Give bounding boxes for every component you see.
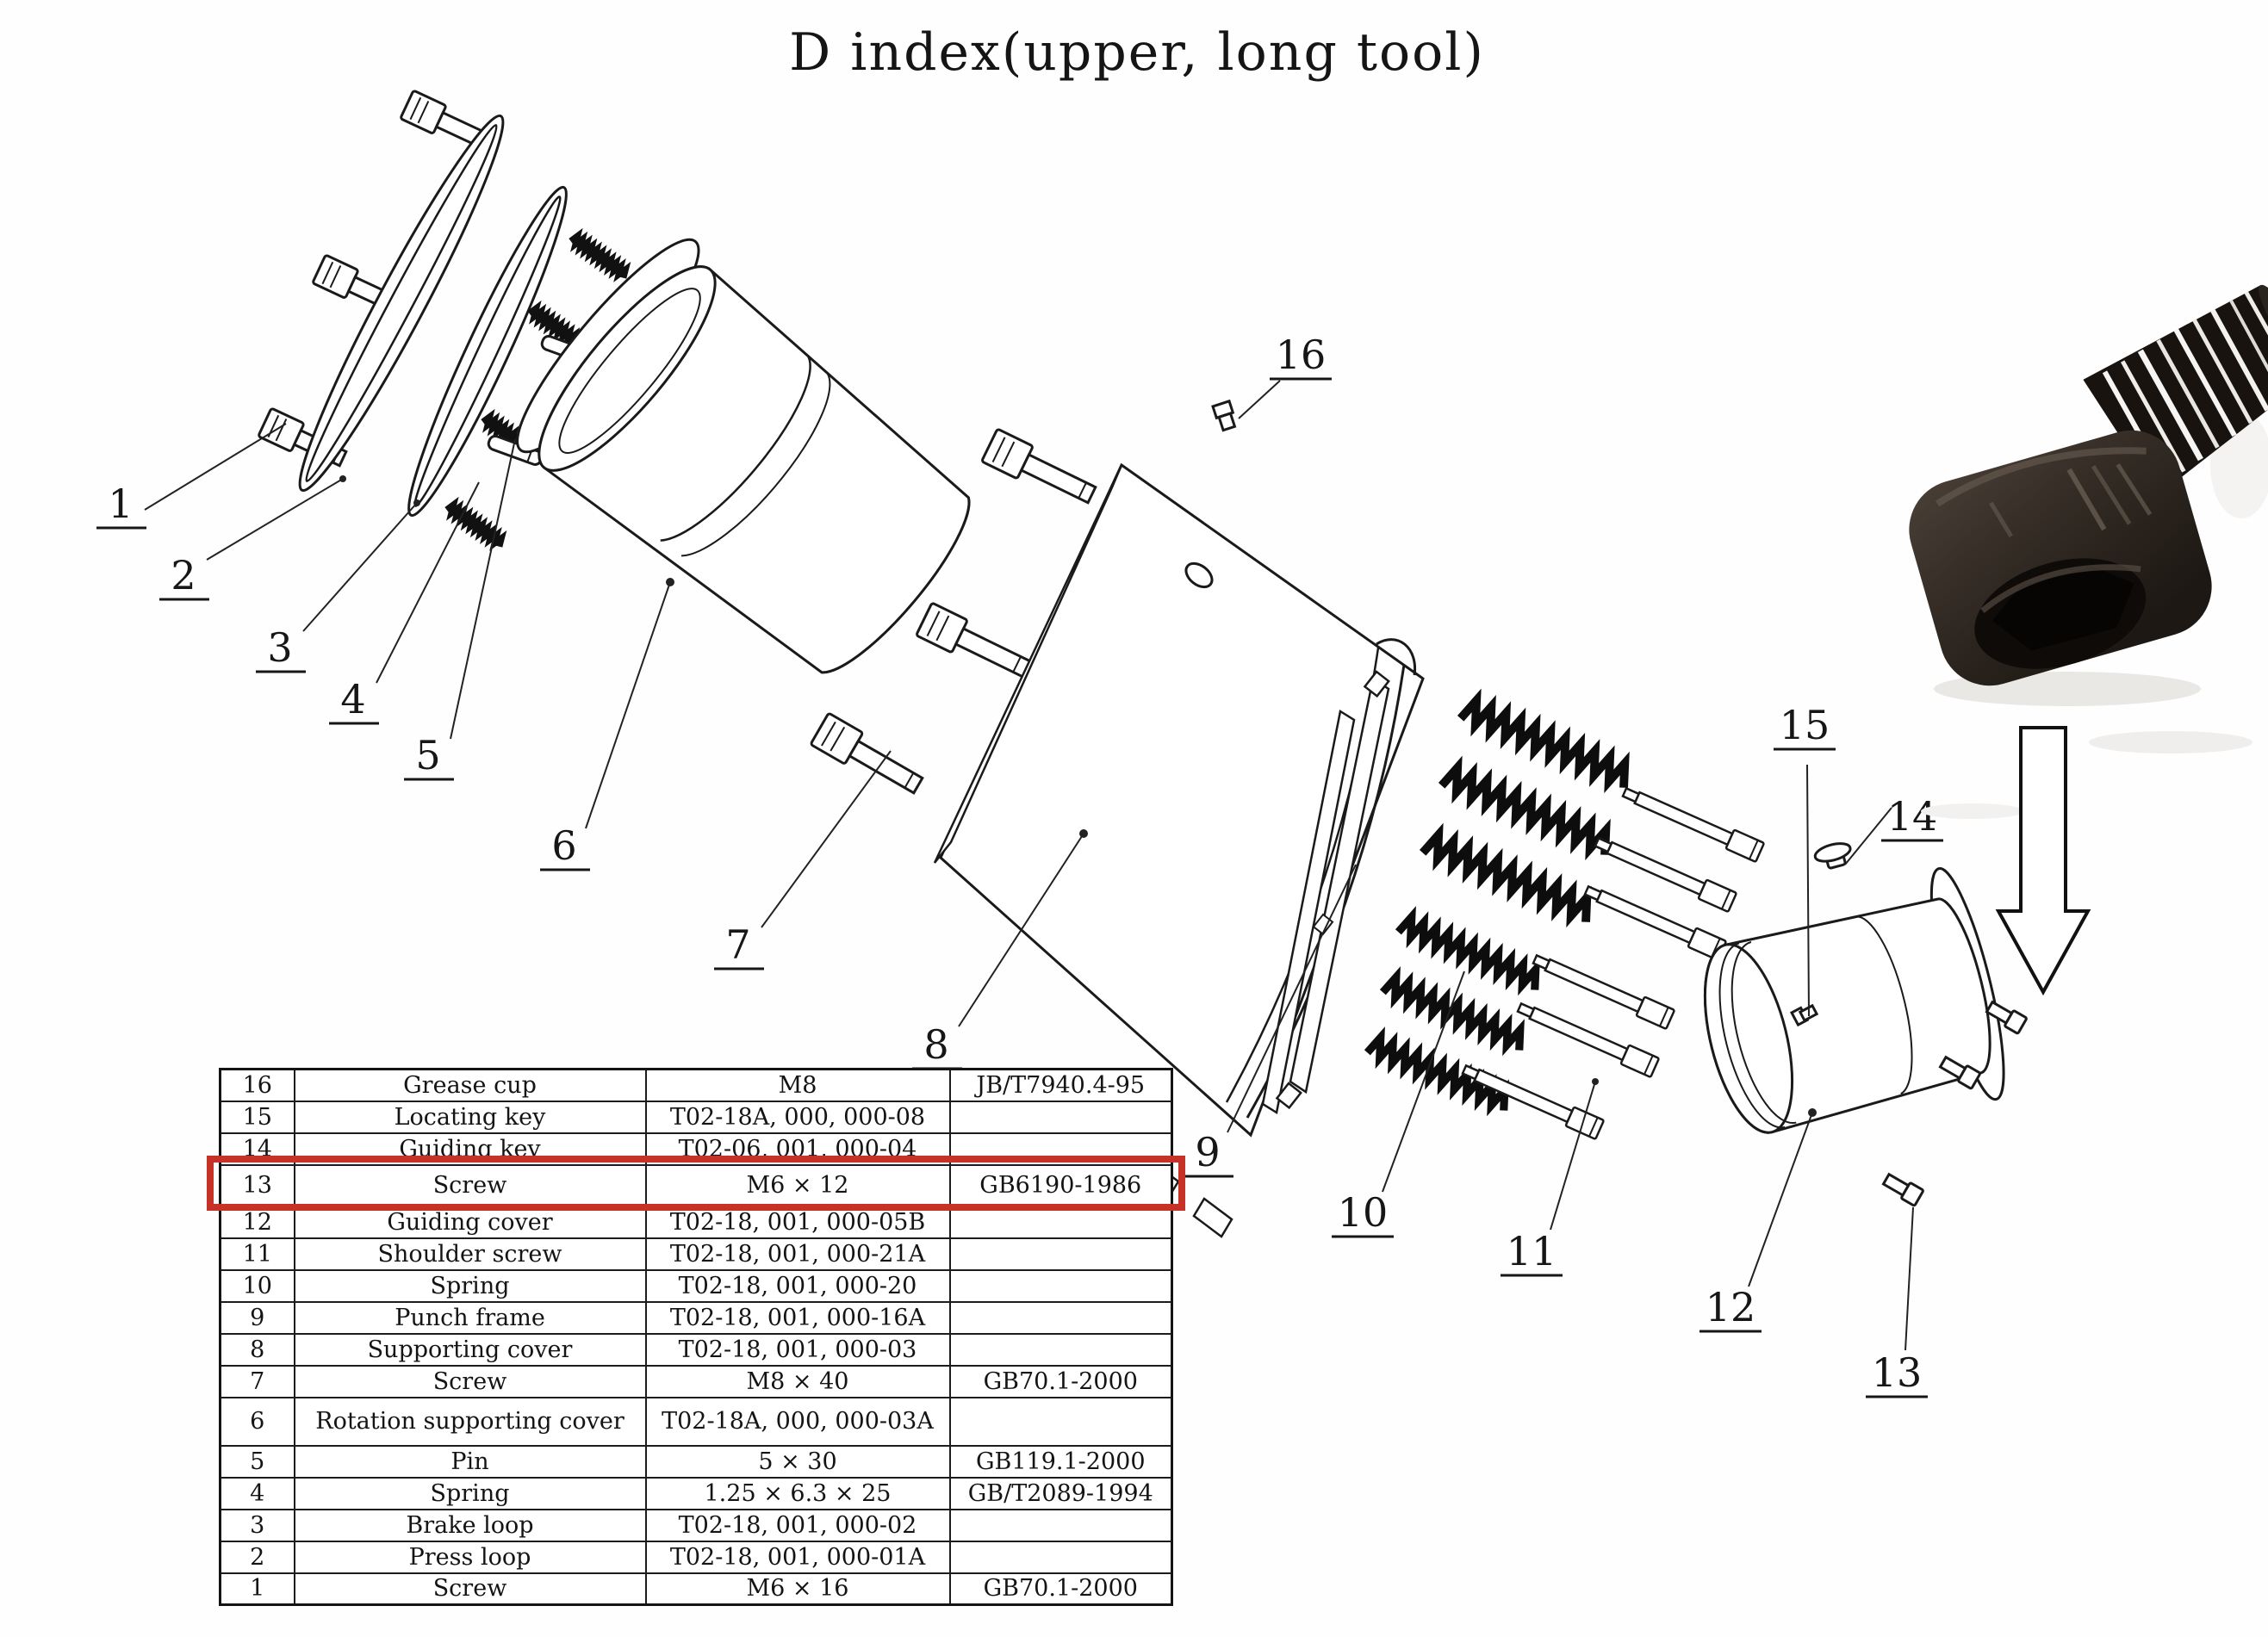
cell-spec: T02-18A, 000, 000-03A	[646, 1398, 950, 1446]
cell-no: 14	[221, 1133, 295, 1165]
callout-14: 14	[1887, 793, 1938, 840]
cell-standard	[950, 1398, 1172, 1446]
cell-name: Locating key	[295, 1101, 646, 1133]
cell-name: Screw	[295, 1573, 646, 1605]
page: D index(upper, long tool)	[0, 0, 2268, 1637]
table-row: 9 Punch frame T02-18, 001, 000-16A	[221, 1302, 1172, 1334]
down-arrow-icon	[1998, 728, 2088, 992]
callout-4: 4	[340, 676, 365, 722]
callout-8: 8	[923, 1021, 948, 1068]
table-row: 10 Spring T02-18, 001, 000-20	[221, 1270, 1172, 1302]
cell-name: Screw	[295, 1165, 646, 1206]
cell-no: 1	[221, 1573, 295, 1605]
cell-no: 9	[221, 1302, 295, 1334]
cell-standard: JB/T7940.4-95	[950, 1070, 1172, 1101]
cell-spec: 5 × 30	[646, 1446, 950, 1478]
cell-spec: T02-18, 001, 000-21A	[646, 1238, 950, 1270]
cell-standard	[950, 1101, 1172, 1133]
cell-name: Pin	[295, 1446, 646, 1478]
cell-name: Spring	[295, 1478, 646, 1510]
cell-standard: GB6190-1986	[950, 1165, 1172, 1206]
cell-standard: GB70.1-2000	[950, 1366, 1172, 1398]
cell-no: 11	[221, 1238, 295, 1270]
callout-2: 2	[171, 552, 196, 598]
cell-spec: T02-18, 001, 000-02	[646, 1510, 950, 1541]
spring-drawings	[1367, 698, 1632, 1111]
callout-15: 15	[1780, 702, 1830, 748]
cell-no: 15	[221, 1101, 295, 1133]
cell-standard	[950, 1206, 1172, 1238]
cell-standard	[950, 1541, 1172, 1573]
cell-name: Guiding key	[295, 1133, 646, 1165]
callout-6: 6	[551, 822, 576, 869]
cell-spec: T02-18, 001, 000-01A	[646, 1541, 950, 1573]
cell-name: Screw	[295, 1366, 646, 1398]
cell-standard	[950, 1270, 1172, 1302]
cell-no: 7	[221, 1366, 295, 1398]
cell-spec: M6 × 12	[646, 1165, 950, 1206]
cell-name: Supporting cover	[295, 1334, 646, 1366]
cell-standard: GB119.1-2000	[950, 1446, 1172, 1478]
callout-11: 11	[1507, 1228, 1557, 1274]
parts-table: 16 Grease cup M8 JB/T7940.4-95 15 Locati…	[219, 1068, 1173, 1606]
callout-10: 10	[1338, 1189, 1389, 1236]
guiding-key-drawing	[1813, 840, 1854, 871]
table-row: 14 Guiding key T02-06, 001, 000-04	[221, 1133, 1172, 1165]
cell-no: 13	[221, 1165, 295, 1206]
callout-5: 5	[415, 732, 440, 778]
cell-spec: T02-18A, 000, 000-08	[646, 1101, 950, 1133]
table-row: 6 Rotation supporting cover T02-18A, 000…	[221, 1398, 1172, 1446]
cell-spec: 1.25 × 6.3 × 25	[646, 1478, 950, 1510]
cell-no: 4	[221, 1478, 295, 1510]
cell-standard	[950, 1238, 1172, 1270]
cell-standard: GB70.1-2000	[950, 1573, 1172, 1605]
grease-cup-drawing	[1213, 401, 1237, 431]
cell-name: Spring	[295, 1270, 646, 1302]
cell-spec: T02-18, 001, 000-16A	[646, 1302, 950, 1334]
cell-spec: T02-18, 001, 000-20	[646, 1270, 950, 1302]
guiding-cover-drawing	[1683, 863, 2018, 1163]
cell-no: 10	[221, 1270, 295, 1302]
table-row: 7 Screw M8 × 40 GB70.1-2000	[221, 1366, 1172, 1398]
cell-standard	[950, 1133, 1172, 1165]
cell-standard	[950, 1510, 1172, 1541]
cell-standard	[950, 1334, 1172, 1366]
cell-no: 5	[221, 1446, 295, 1478]
callout-13: 13	[1872, 1349, 1923, 1396]
cell-spec: T02-18, 001, 000-03	[646, 1334, 950, 1366]
callout-16: 16	[1276, 332, 1327, 378]
table-row: 11 Shoulder screw T02-18, 001, 000-21A	[221, 1238, 1172, 1270]
cell-no: 2	[221, 1541, 295, 1573]
table-row: 5 Pin 5 × 30 GB119.1-2000	[221, 1446, 1172, 1478]
cell-no: 12	[221, 1206, 295, 1238]
callout-3: 3	[267, 624, 292, 671]
cell-name: Punch frame	[295, 1302, 646, 1334]
cell-name: Rotation supporting cover	[295, 1398, 646, 1446]
table-row: 15 Locating key T02-18A, 000, 000-08	[221, 1101, 1172, 1133]
table-row-highlighted: 13 Screw M6 × 12 GB6190-1986	[221, 1165, 1172, 1206]
table-row: 4 Spring 1.25 × 6.3 × 25 GB/T2089-1994	[221, 1478, 1172, 1510]
table-row: 8 Supporting cover T02-18, 001, 000-03	[221, 1334, 1172, 1366]
callout-12: 12	[1706, 1284, 1756, 1330]
cell-no: 16	[221, 1070, 295, 1101]
table-row: 2 Press loop T02-18, 001, 000-01A	[221, 1541, 1172, 1573]
table-row: 12 Guiding cover T02-18, 001, 000-05B	[221, 1206, 1172, 1238]
callout-9: 9	[1195, 1129, 1220, 1175]
cell-no: 6	[221, 1398, 295, 1446]
cell-name: Guiding cover	[295, 1206, 646, 1238]
cell-standard	[950, 1302, 1172, 1334]
cell-spec: M6 × 16	[646, 1573, 950, 1605]
cell-name: Grease cup	[295, 1070, 646, 1101]
press-loop-drawing	[282, 105, 522, 501]
table-row: 3 Brake loop T02-18, 001, 000-02	[221, 1510, 1172, 1541]
callout-1: 1	[108, 481, 133, 527]
table-row: 1 Screw M6 × 16 GB70.1-2000	[221, 1573, 1172, 1605]
table-row: 16 Grease cup M8 JB/T7940.4-95	[221, 1070, 1172, 1101]
cell-spec: M8 × 40	[646, 1366, 950, 1398]
cell-no: 8	[221, 1334, 295, 1366]
cell-spec: M8	[646, 1070, 950, 1101]
cell-no: 3	[221, 1510, 295, 1541]
cell-spec: T02-06, 001, 000-04	[646, 1133, 950, 1165]
cell-standard: GB/T2089-1994	[950, 1478, 1172, 1510]
screw-photo	[1898, 264, 2268, 819]
callout-7: 7	[725, 921, 750, 968]
cell-name: Press loop	[295, 1541, 646, 1573]
cell-name: Brake loop	[295, 1510, 646, 1541]
cell-spec: T02-18, 001, 000-05B	[646, 1206, 950, 1238]
cell-name: Shoulder screw	[295, 1238, 646, 1270]
